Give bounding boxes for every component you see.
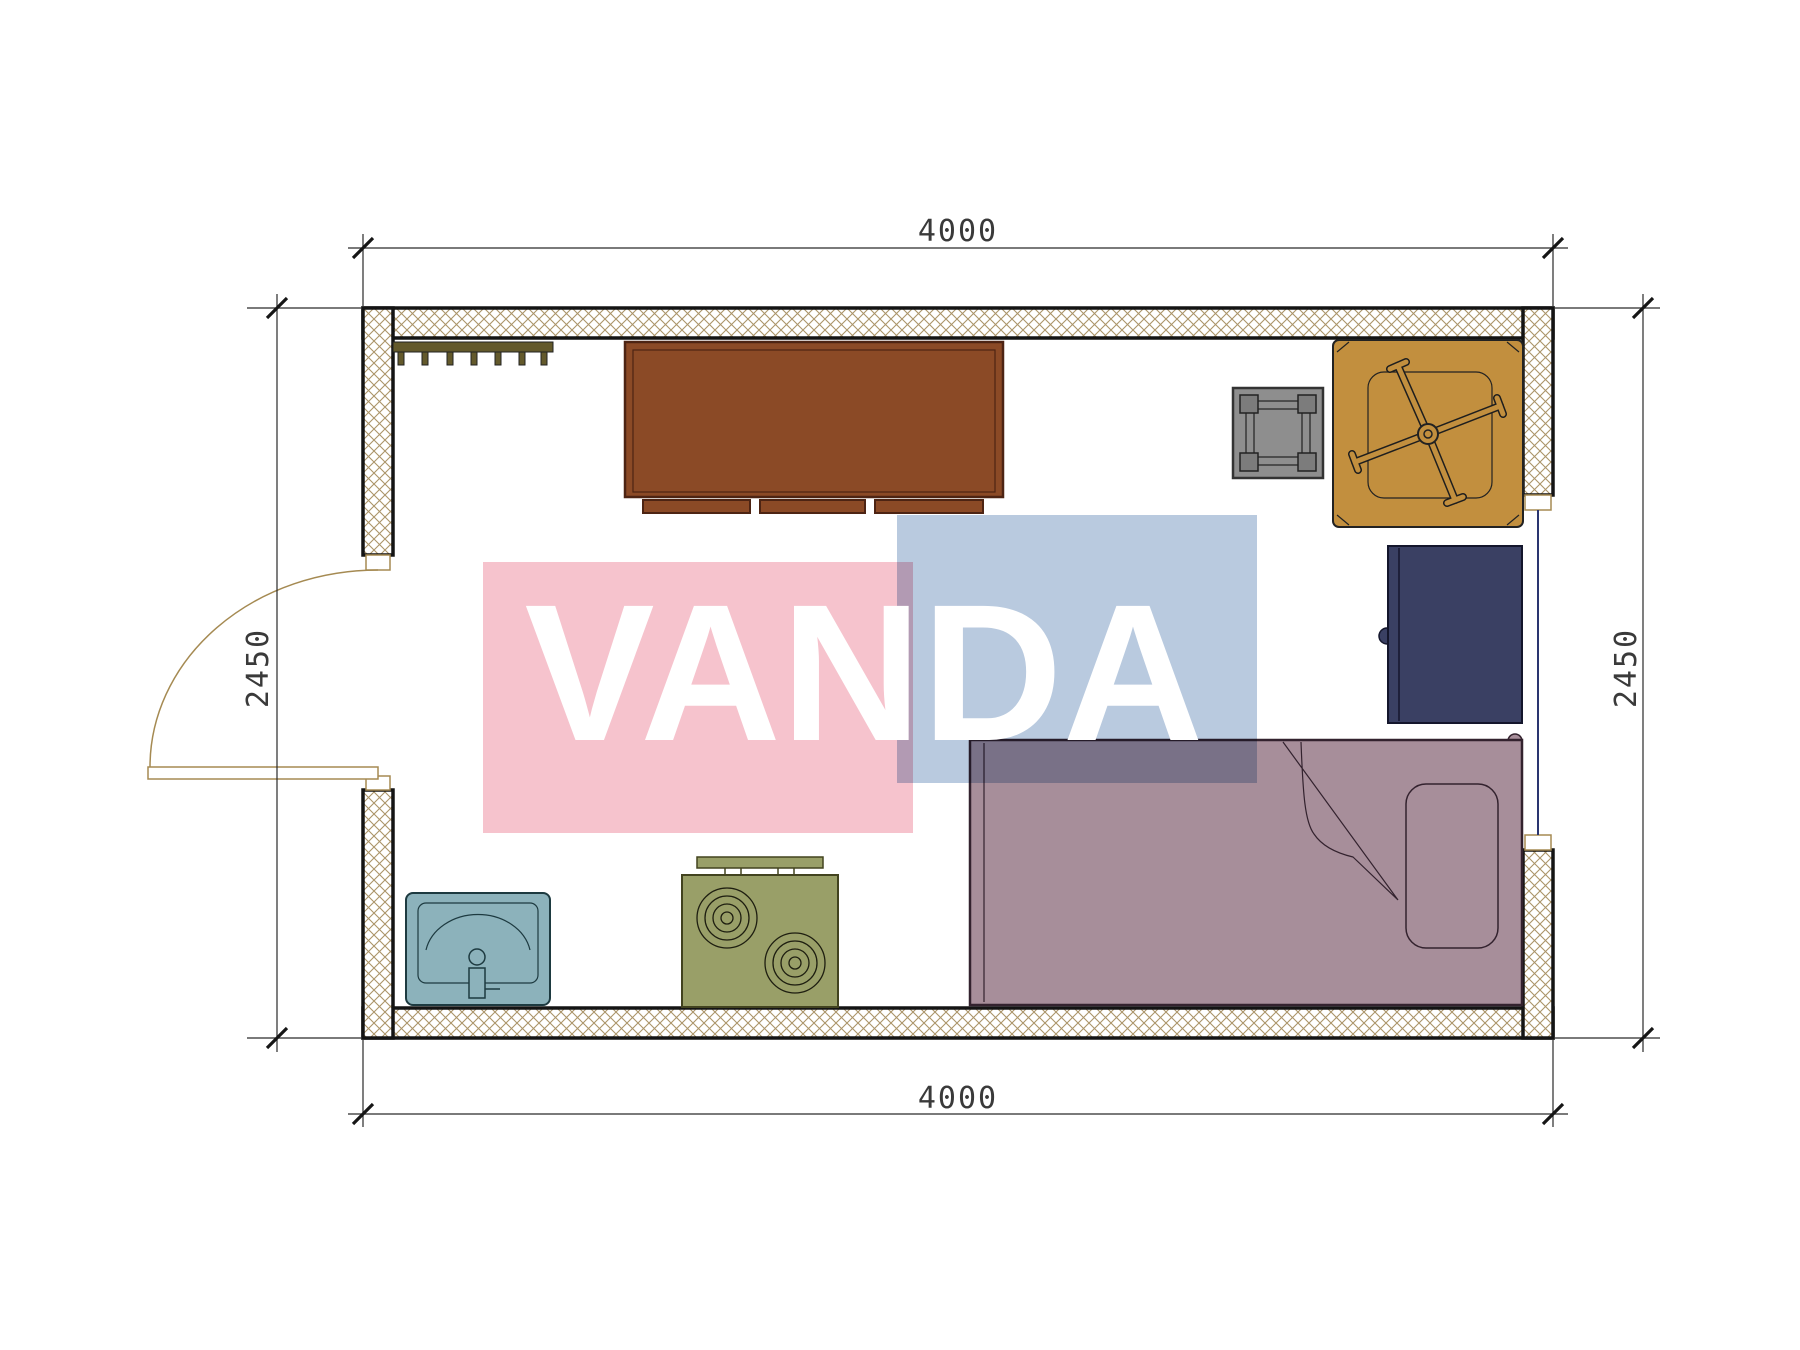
wall-right-lower: [1523, 850, 1553, 1038]
wall-bottom: [363, 1008, 1553, 1038]
window-jamb-top: [1525, 495, 1551, 510]
floor-plan-drawing: VANDA 4000 4000 2450 2450: [0, 0, 1800, 1350]
stove-rail-posts: [725, 868, 794, 875]
dim-top-label: 4000: [918, 214, 998, 249]
stove-rail: [697, 857, 823, 868]
wall-top: [363, 308, 1553, 338]
sink-faucet-body: [469, 968, 485, 998]
dim-left-label: 2450: [241, 628, 276, 708]
door-jamb-top: [366, 555, 390, 570]
coat-rack-bar: [393, 342, 553, 352]
door-leaf: [148, 767, 378, 779]
watermark-text: VANDA: [525, 564, 1204, 782]
cabinet: [1379, 546, 1522, 723]
wall-right-upper: [1523, 308, 1553, 495]
sink: [406, 893, 550, 1005]
dim-right-lines: [1555, 294, 1660, 1052]
desk-drawers: [643, 500, 983, 513]
wall-left-lower: [363, 790, 393, 1038]
floor-plan-page: VANDA 4000 4000 2450 2450: [0, 0, 1800, 1350]
dim-bottom-label: 4000: [918, 1081, 998, 1116]
cabinet-body: [1388, 546, 1522, 723]
coat-rack: [393, 342, 553, 365]
stool: [1233, 388, 1323, 478]
coat-rack-hooks: [398, 352, 547, 365]
desk-top: [625, 342, 1003, 497]
desk: [625, 342, 1003, 513]
bed-pillow: [1406, 784, 1498, 948]
pedestal-table: [1333, 340, 1523, 527]
wall-left-upper: [363, 308, 393, 555]
window-jamb-bottom: [1525, 835, 1551, 850]
dim-right-label: 2450: [1609, 628, 1644, 708]
stove: [682, 857, 838, 1007]
pedestal-hub: [1418, 424, 1438, 444]
